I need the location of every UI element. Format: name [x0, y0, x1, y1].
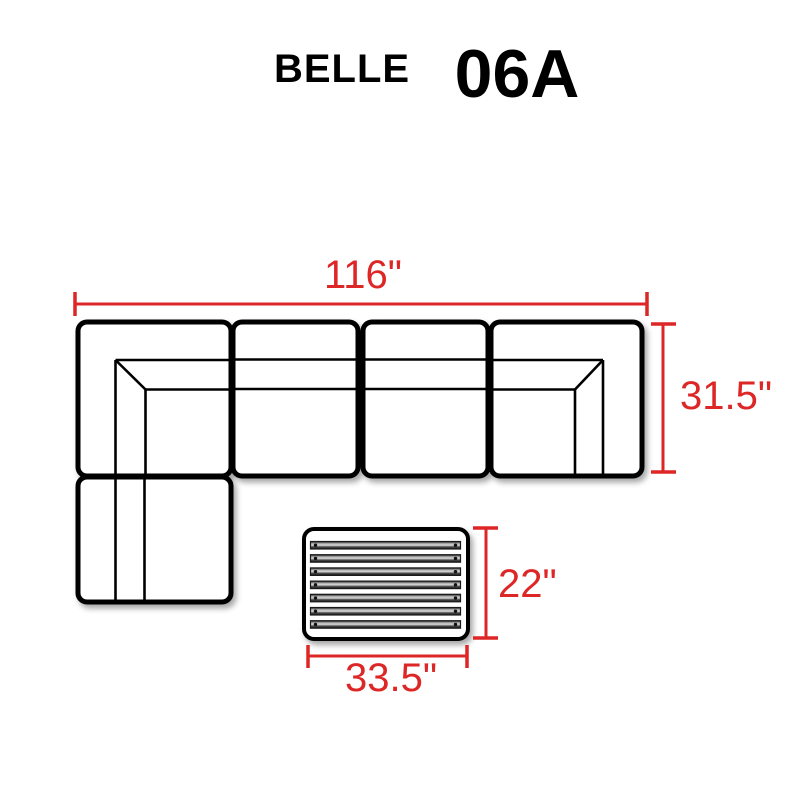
right-corner-sofa [491, 322, 642, 476]
dim-table-width-label: 33.5" [345, 656, 437, 700]
table-slat [311, 594, 461, 602]
slat-pin-dot [314, 610, 317, 613]
slat-pin-dot [314, 583, 317, 586]
dim-overall-width: 116" [75, 253, 647, 316]
dim-table-depth: 22" [473, 528, 557, 638]
slat-pin-dot [314, 557, 317, 560]
slat-pin-dot [314, 596, 317, 599]
slat-pin-dot [314, 570, 317, 573]
collection-title: BELLE [274, 47, 410, 91]
product-diagram-page: BELLE 06A [0, 0, 800, 800]
dim-table-width: 33.5" [308, 645, 467, 700]
slat-pin-dot [314, 623, 317, 626]
table-slat [311, 621, 461, 629]
table-slat [311, 608, 461, 616]
left-side-armless-sofa [78, 477, 231, 602]
left-corner-sofa [78, 322, 231, 476]
table-slat [311, 581, 461, 589]
slat-pin-dot [454, 596, 457, 599]
slat-pin-dot [454, 623, 457, 626]
dim-overall-width-label: 116" [324, 253, 402, 297]
set-code-title: 06A [455, 36, 580, 112]
armless-middle-sofa-1 [233, 322, 358, 476]
armless-middle-sofa-2 [363, 322, 488, 476]
table-slat [311, 568, 461, 576]
table-slat [311, 555, 461, 563]
dim-table-depth-label: 22" [498, 562, 557, 606]
slat-pin-dot [454, 557, 457, 560]
slat-pin-dot [314, 544, 317, 547]
table-slats [311, 542, 461, 629]
slat-pin-dot [454, 570, 457, 573]
sectional-diagram: BELLE 06A [0, 0, 800, 800]
slat-pin-dot [454, 583, 457, 586]
table-slat [311, 542, 461, 550]
dim-overall-depth-label: 31.5" [680, 374, 772, 418]
coffee-table [304, 529, 468, 639]
slat-pin-dot [454, 544, 457, 547]
slat-pin-dot [454, 610, 457, 613]
dim-overall-depth: 31.5" [651, 324, 772, 472]
